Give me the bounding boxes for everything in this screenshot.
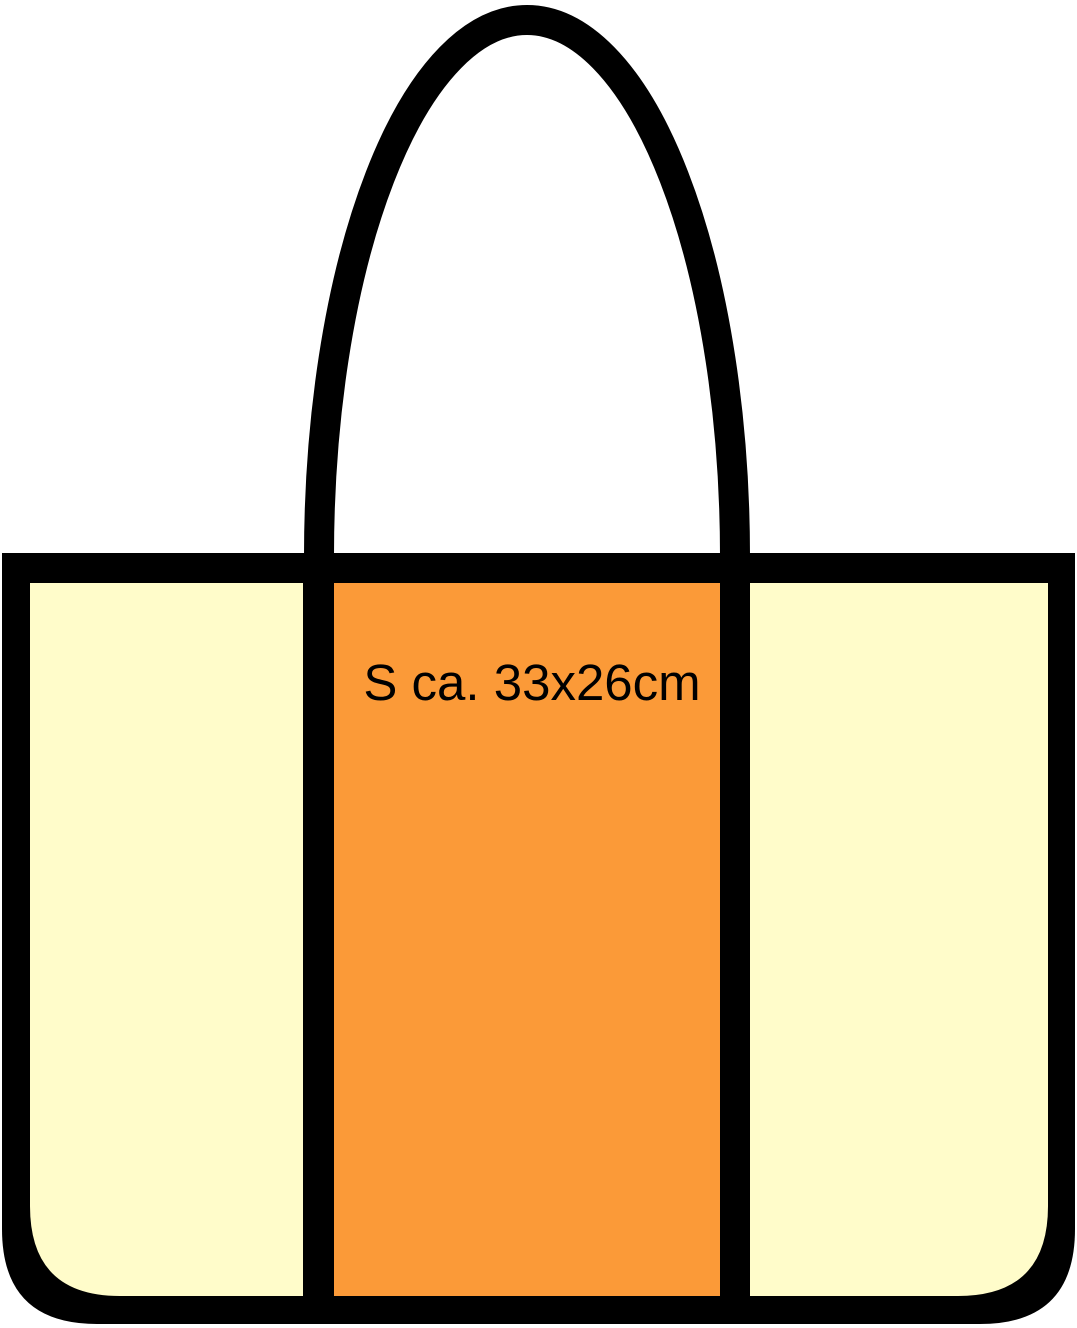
tote-bag-diagram: S ca. 33x26cm [0,0,1077,1328]
print-area-size-label: S ca. 33x26cm [363,654,700,711]
tote-bag-illustration: S ca. 33x26cm [0,0,1077,1328]
bag-right-panel [750,583,1048,1296]
bag-left-panel [30,583,303,1296]
